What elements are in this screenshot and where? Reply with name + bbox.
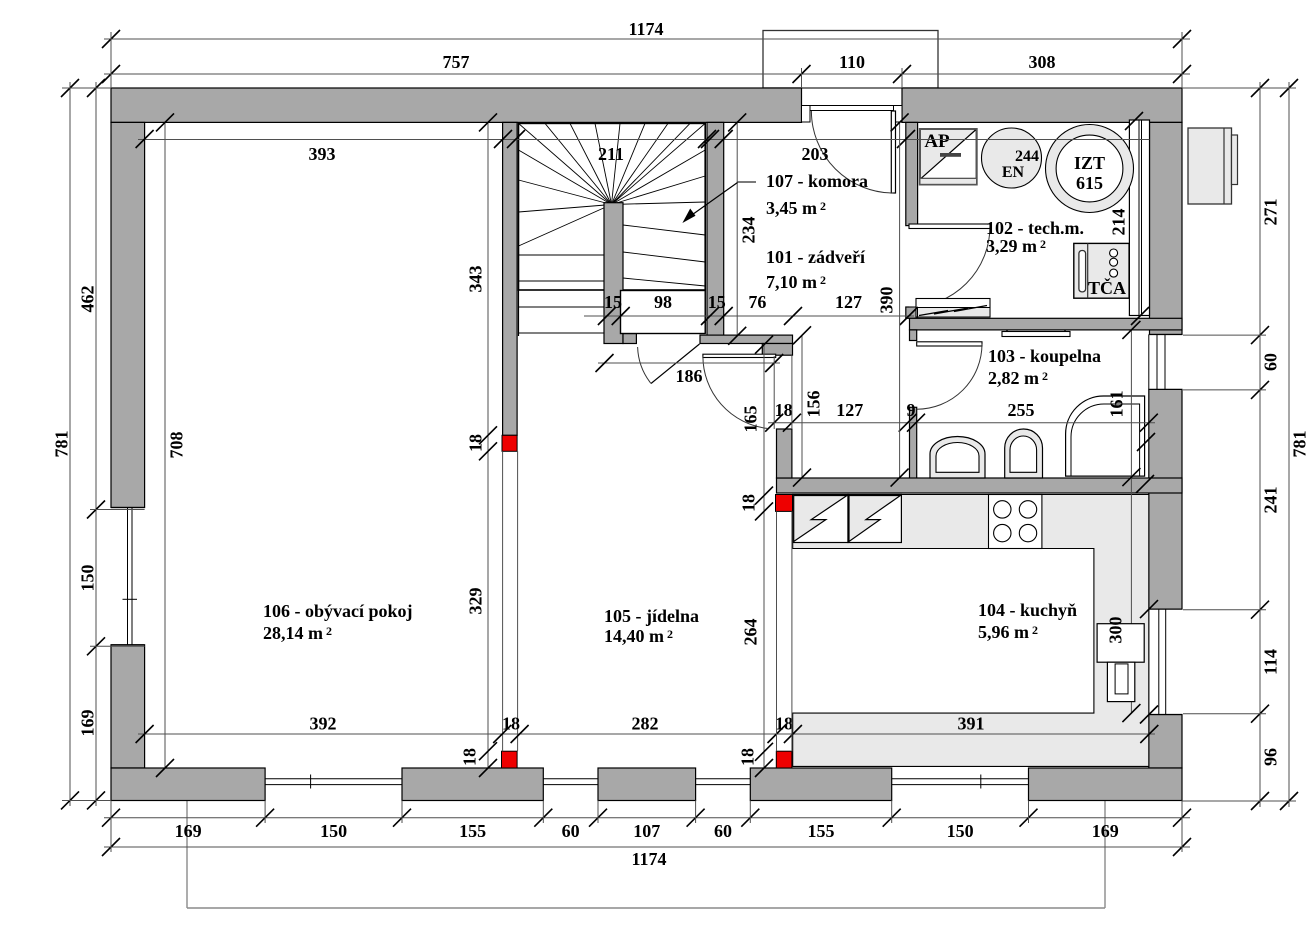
svg-text:615: 615 bbox=[1076, 173, 1103, 193]
svg-text:107: 107 bbox=[633, 821, 660, 841]
svg-text:76: 76 bbox=[748, 292, 766, 312]
svg-text:18: 18 bbox=[775, 714, 793, 734]
svg-text:18: 18 bbox=[466, 434, 486, 452]
svg-text:9: 9 bbox=[907, 400, 916, 420]
svg-text:114: 114 bbox=[1261, 649, 1281, 675]
svg-text:234: 234 bbox=[739, 217, 759, 244]
svg-text:462: 462 bbox=[78, 286, 98, 313]
svg-text:103 - koupelna: 103 - koupelna bbox=[988, 346, 1101, 366]
svg-text:781: 781 bbox=[52, 431, 72, 458]
svg-text:264: 264 bbox=[741, 619, 761, 646]
svg-text:14,40 m 2: 14,40 m 2 bbox=[604, 626, 673, 646]
svg-text:28,14 m 2: 28,14 m 2 bbox=[263, 623, 332, 643]
svg-text:392: 392 bbox=[310, 714, 337, 734]
svg-text:1174: 1174 bbox=[628, 19, 663, 39]
svg-text:TČA: TČA bbox=[1088, 277, 1126, 298]
svg-text:391: 391 bbox=[958, 714, 985, 734]
svg-text:1174: 1174 bbox=[631, 849, 666, 869]
svg-text:150: 150 bbox=[947, 821, 974, 841]
svg-text:329: 329 bbox=[466, 588, 486, 615]
svg-text:156: 156 bbox=[804, 391, 824, 418]
svg-text:300: 300 bbox=[1106, 617, 1126, 644]
svg-text:18: 18 bbox=[775, 400, 793, 420]
svg-text:150: 150 bbox=[320, 821, 347, 841]
svg-text:IZT: IZT bbox=[1074, 153, 1105, 173]
svg-text:18: 18 bbox=[502, 714, 520, 734]
svg-text:169: 169 bbox=[78, 710, 98, 737]
svg-text:18: 18 bbox=[738, 748, 758, 766]
svg-text:161: 161 bbox=[1107, 391, 1127, 418]
svg-text:EN: EN bbox=[1002, 164, 1025, 181]
svg-text:102 - tech.m.: 102 - tech.m. bbox=[986, 218, 1084, 238]
svg-text:15: 15 bbox=[708, 292, 726, 312]
svg-text:186: 186 bbox=[676, 366, 703, 386]
svg-text:244: 244 bbox=[1015, 148, 1039, 165]
svg-text:169: 169 bbox=[1092, 821, 1119, 841]
svg-text:127: 127 bbox=[836, 400, 863, 420]
svg-text:101 - zádveří: 101 - zádveří bbox=[766, 247, 866, 267]
svg-text:107 - komora: 107 - komora bbox=[766, 171, 868, 191]
svg-text:343: 343 bbox=[466, 266, 486, 293]
svg-text:104 - kuchyň: 104 - kuchyň bbox=[978, 600, 1077, 620]
svg-text:127: 127 bbox=[835, 292, 862, 312]
svg-text:708: 708 bbox=[167, 432, 187, 459]
svg-text:18: 18 bbox=[739, 494, 759, 512]
svg-text:271: 271 bbox=[1261, 199, 1281, 226]
svg-text:96: 96 bbox=[1261, 748, 1281, 766]
svg-text:155: 155 bbox=[459, 821, 486, 841]
svg-text:241: 241 bbox=[1261, 487, 1281, 514]
svg-text:60: 60 bbox=[1261, 353, 1281, 371]
svg-text:390: 390 bbox=[877, 287, 897, 314]
svg-text:18: 18 bbox=[460, 748, 480, 766]
svg-text:781: 781 bbox=[1290, 431, 1310, 458]
svg-text:393: 393 bbox=[309, 144, 336, 164]
svg-text:255: 255 bbox=[1008, 400, 1035, 420]
svg-text:169: 169 bbox=[175, 821, 202, 841]
svg-text:282: 282 bbox=[632, 714, 659, 734]
svg-text:98: 98 bbox=[654, 292, 672, 312]
svg-text:15: 15 bbox=[604, 292, 622, 312]
svg-text:106 - obývací pokoj: 106 - obývací pokoj bbox=[263, 601, 413, 621]
svg-text:203: 203 bbox=[802, 144, 829, 164]
svg-text:105 - jídelna: 105 - jídelna bbox=[604, 606, 699, 626]
svg-text:308: 308 bbox=[1029, 52, 1056, 72]
svg-text:110: 110 bbox=[839, 52, 865, 72]
svg-text:155: 155 bbox=[808, 821, 835, 841]
svg-text:AP: AP bbox=[924, 131, 950, 152]
svg-text:60: 60 bbox=[714, 821, 732, 841]
svg-text:165: 165 bbox=[741, 406, 761, 433]
svg-text:60: 60 bbox=[562, 821, 580, 841]
svg-text:214: 214 bbox=[1109, 209, 1129, 236]
svg-text:150: 150 bbox=[78, 565, 98, 592]
svg-text:211: 211 bbox=[598, 144, 624, 164]
svg-text:757: 757 bbox=[443, 52, 470, 72]
